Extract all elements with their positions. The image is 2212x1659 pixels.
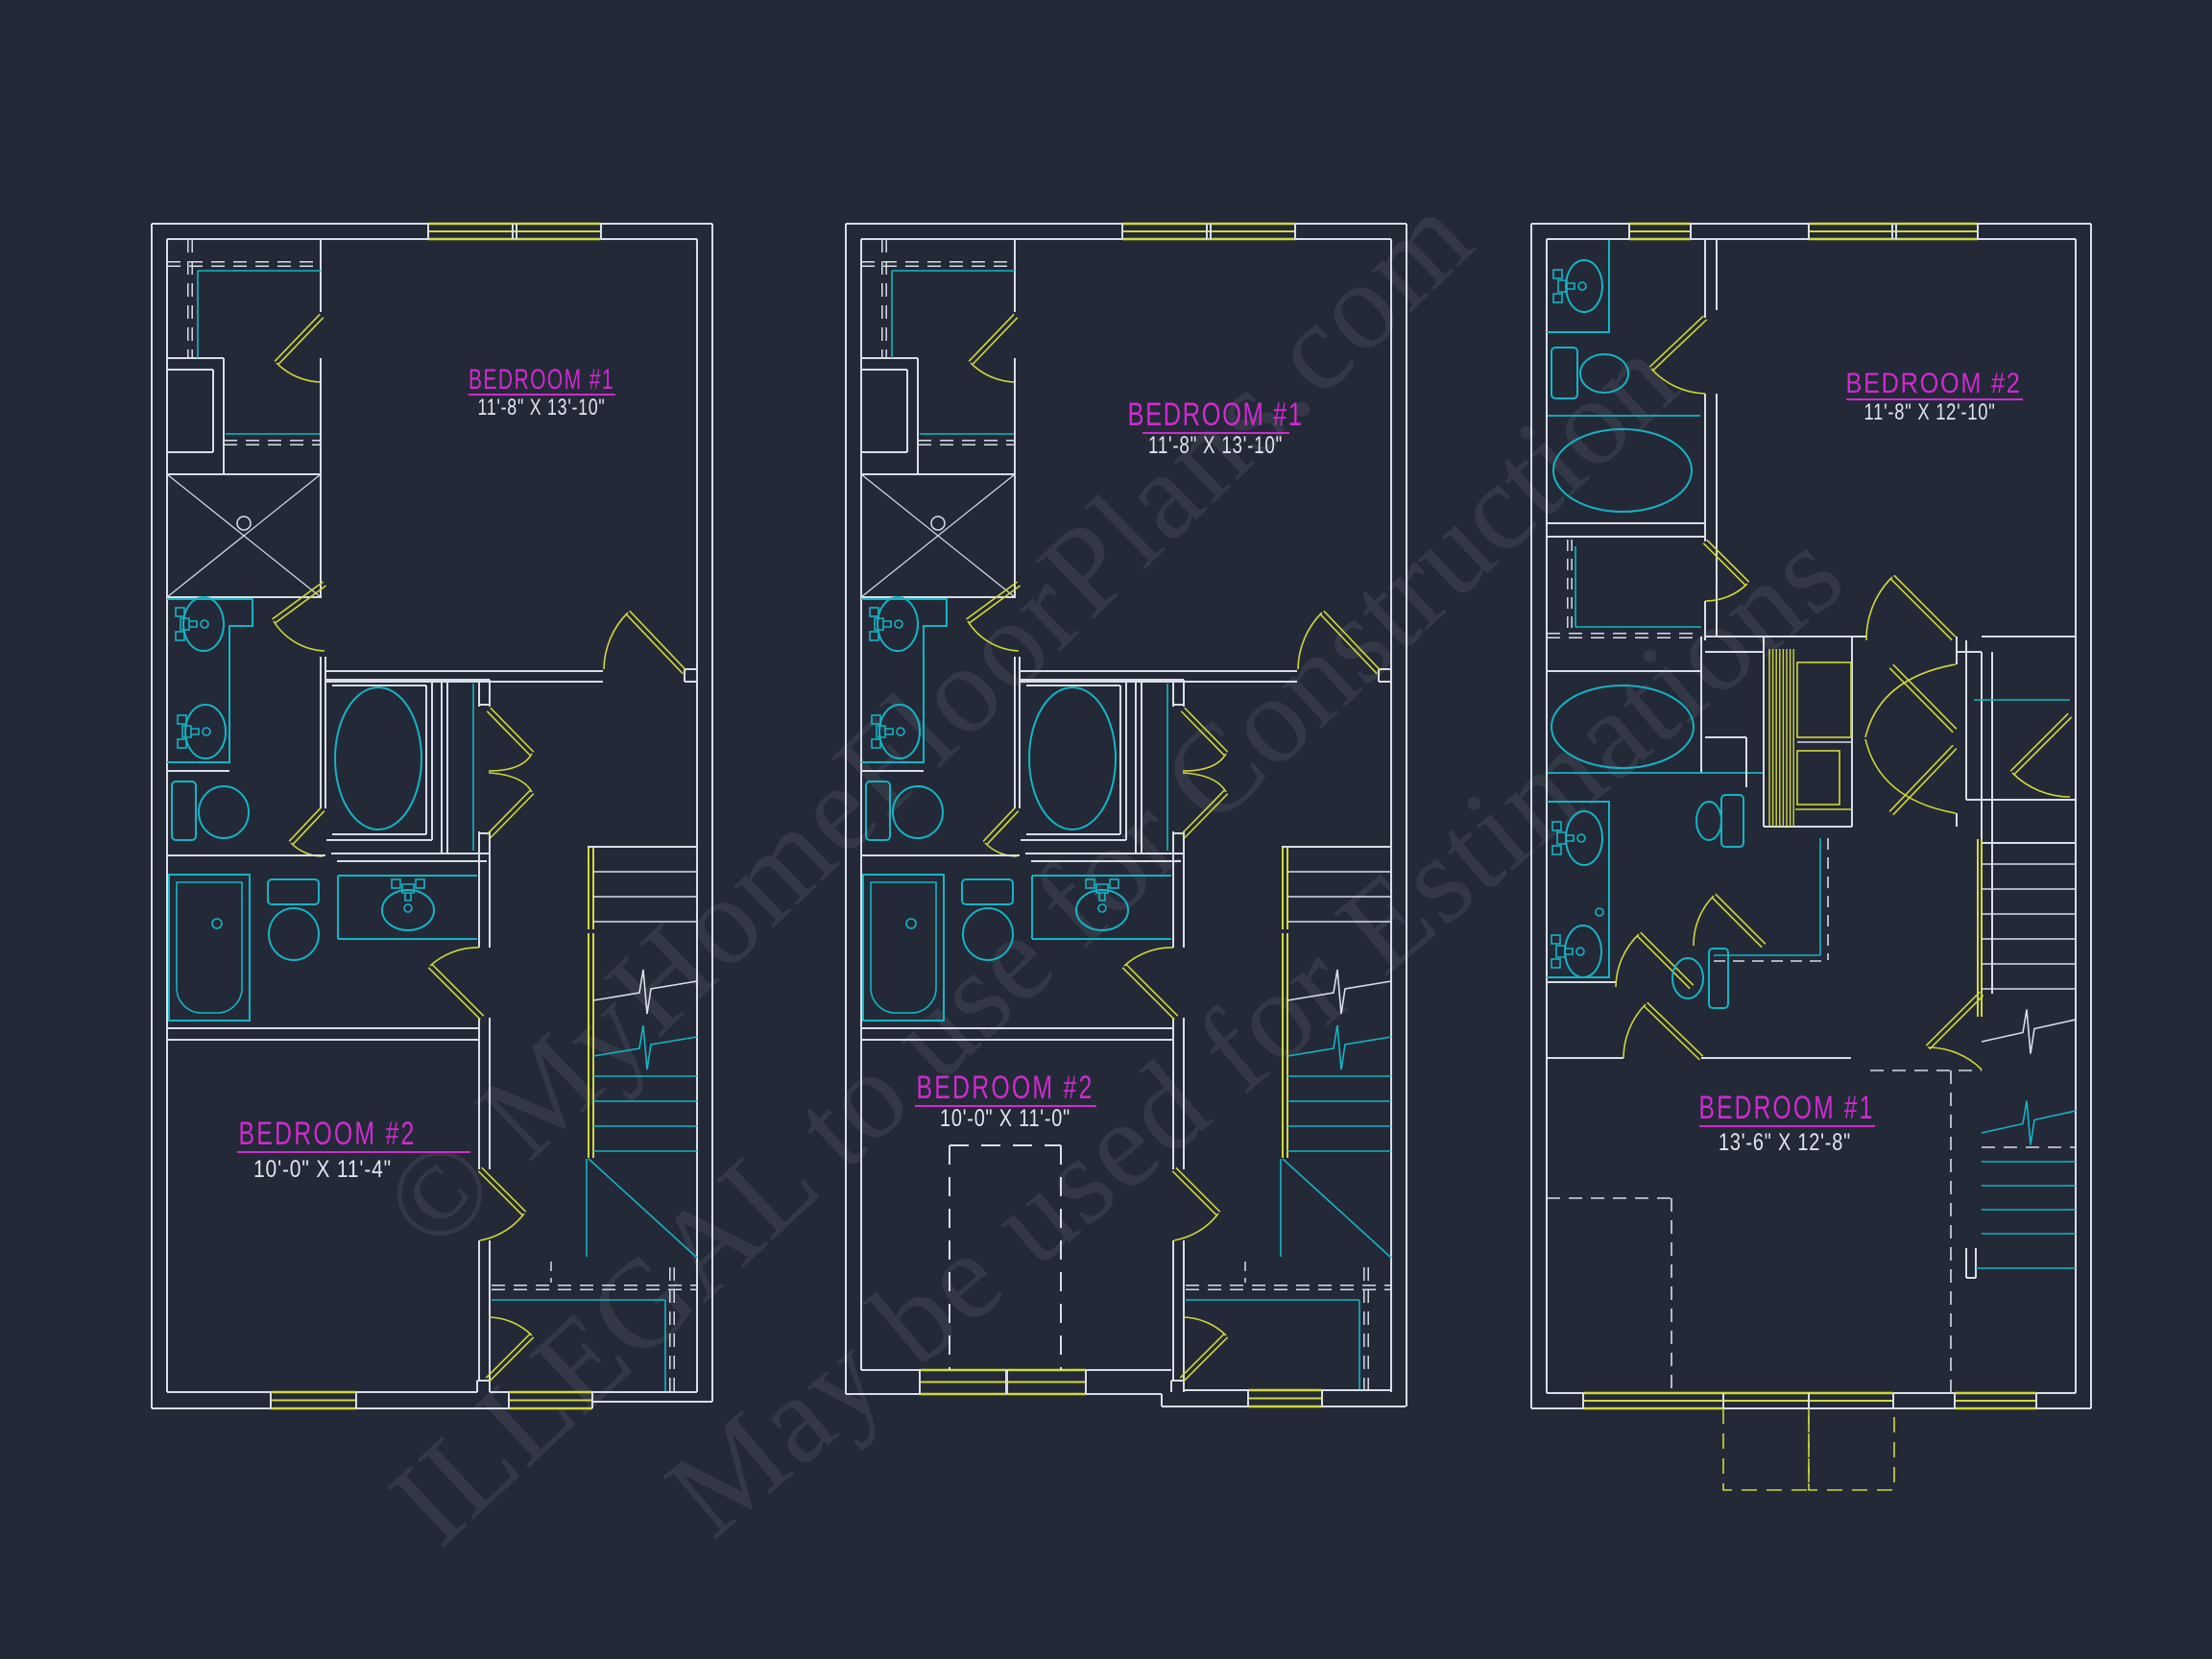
svg-text:11'-8" X 13'-10": 11'-8" X 13'-10" xyxy=(478,395,606,421)
svg-text:10'-0" X 11'-4": 10'-0" X 11'-4" xyxy=(253,1156,392,1183)
svg-text:BEDROOM #1: BEDROOM #1 xyxy=(1699,1090,1875,1126)
svg-text:BEDROOM #2: BEDROOM #2 xyxy=(239,1116,417,1152)
svg-text:BEDROOM #2: BEDROOM #2 xyxy=(917,1070,1094,1106)
svg-text:BEDROOM #2: BEDROOM #2 xyxy=(1846,368,2022,399)
svg-text:BEDROOM #1: BEDROOM #1 xyxy=(1128,397,1304,433)
svg-text:11'-8" X 13'-10": 11'-8" X 13'-10" xyxy=(1148,432,1283,459)
svg-text:11'-8" X 12'-10": 11'-8" X 12'-10" xyxy=(1864,399,1996,425)
svg-text:10'-0" X 11'-0": 10'-0" X 11'-0" xyxy=(940,1105,1070,1132)
svg-text:BEDROOM #1: BEDROOM #1 xyxy=(469,364,614,396)
svg-text:13'-6" X 12'-8": 13'-6" X 12'-8" xyxy=(1719,1129,1851,1156)
